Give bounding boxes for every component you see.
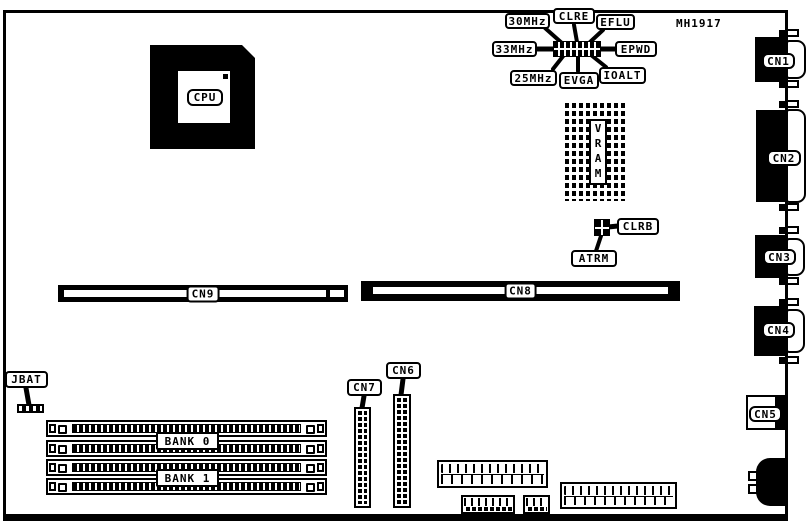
clock-jumper-block: [553, 41, 601, 57]
mounting-tab: [786, 226, 799, 234]
mounting-tab: [779, 278, 786, 285]
jumper-label-clrb: CLRB: [617, 218, 659, 235]
mounting-tab: [786, 80, 799, 88]
jumper-label-atrm: ATRM: [571, 250, 617, 267]
mounting-tab: [786, 29, 799, 37]
jumper-label-eflu: EFLU: [596, 14, 635, 30]
pin-strip-bar: [526, 507, 547, 511]
jumper-label-33mhz: 33MHz: [492, 41, 537, 57]
terminal-pins-row: [564, 486, 673, 495]
simm-clip: [306, 483, 315, 492]
slot-cn9-label: CN9: [187, 285, 220, 302]
cpu-pin1-dot: [223, 74, 228, 79]
simm-clip: [49, 463, 56, 472]
jumper-label-epwd: EPWD: [615, 41, 657, 57]
mounting-tab: [786, 203, 799, 211]
simm-clip: [49, 424, 56, 433]
simm-clip: [317, 424, 324, 433]
cpu-label: CPU: [187, 89, 223, 106]
din-connector-pin: [748, 484, 758, 494]
header-label-cn7: CN7: [347, 379, 382, 396]
part-number: MH1917: [676, 17, 722, 30]
jumper-label-30mhz: 30MHz: [505, 13, 550, 29]
terminal-sockets-row: [441, 474, 544, 484]
connector-cn4-label: CN4: [762, 322, 795, 338]
simm-clip: [306, 445, 315, 454]
motherboard-diagram: MH1917 CPU 30MHz CLRE EFLU 33MHz EPWD 25…: [0, 0, 809, 527]
mounting-tab: [779, 81, 786, 88]
pin-strip-connector: [461, 495, 515, 514]
mounting-tab: [786, 277, 799, 285]
mounting-tab: [779, 227, 786, 234]
pin-strip-connector-small: [523, 495, 550, 514]
header-cn6-pins: [397, 398, 407, 504]
vram-label: VRAM: [589, 119, 607, 185]
clrb-jumper-block: [594, 219, 610, 236]
terminal-sockets-row: [564, 496, 673, 506]
connector-cn2-label: CN2: [767, 150, 801, 166]
memory-bank1-label: BANK 1: [156, 469, 219, 487]
din-connector-pin: [748, 471, 758, 481]
pin-strip-teeth: [526, 498, 547, 506]
mounting-tab: [786, 356, 799, 364]
slot-cn8-label: CN8: [504, 283, 537, 300]
pointer-line: [574, 25, 577, 42]
simm-clip: [58, 483, 67, 492]
slot-cn9-key2: [330, 290, 344, 297]
connector-cn1-label: CN1: [762, 53, 795, 69]
mounting-tab: [779, 299, 786, 306]
simm-clip: [317, 463, 324, 472]
simm-clip: [49, 482, 56, 491]
jumper-label-clre: CLRE: [553, 8, 595, 24]
simm-clip: [58, 464, 67, 473]
connector-cn5-label: CN5: [749, 406, 782, 422]
header-cn7: [354, 407, 371, 508]
jbat-jumper-block: [17, 404, 44, 413]
pointer-line: [553, 55, 564, 69]
memory-bank0-label: BANK 0: [156, 432, 219, 450]
connector-cn3-label: CN3: [763, 249, 796, 265]
jumper-label-ioalt: IOALT: [599, 67, 646, 84]
pointer-line: [401, 379, 403, 395]
jumper-label-jbat: JBAT: [5, 371, 48, 388]
jumper-label-25mhz: 25MHz: [510, 70, 557, 86]
header-cn7-pins: [358, 411, 367, 504]
simm-clip: [317, 444, 324, 453]
jumper-label-evga: EVGA: [559, 72, 599, 89]
header-cn6: [393, 394, 411, 508]
pointer-line: [596, 236, 601, 251]
header-label-cn6: CN6: [386, 362, 421, 379]
terminal-pins-row: [441, 464, 544, 473]
terminal-connector: [560, 482, 677, 509]
mounting-tab: [786, 298, 799, 306]
mounting-tab: [779, 357, 786, 364]
simm-clip: [306, 464, 315, 473]
simm-clip: [58, 445, 67, 454]
simm-clip: [306, 425, 315, 434]
vram-chip: VRAM: [565, 103, 628, 201]
terminal-connector: [437, 460, 548, 488]
din-connector-body: [756, 458, 787, 506]
pin-strip-bar: [464, 507, 512, 511]
pointer-line: [26, 388, 29, 405]
pin-strip-teeth: [464, 498, 512, 506]
mounting-tab: [786, 100, 799, 108]
simm-clip: [317, 482, 324, 491]
slot-cn8: CN8: [361, 281, 680, 301]
slot-cn9: CN9: [58, 285, 348, 302]
mounting-tab: [779, 204, 786, 211]
simm-clip: [49, 444, 56, 453]
simm-clip: [58, 425, 67, 434]
mounting-tab: [779, 101, 786, 108]
mounting-tab: [779, 30, 786, 37]
